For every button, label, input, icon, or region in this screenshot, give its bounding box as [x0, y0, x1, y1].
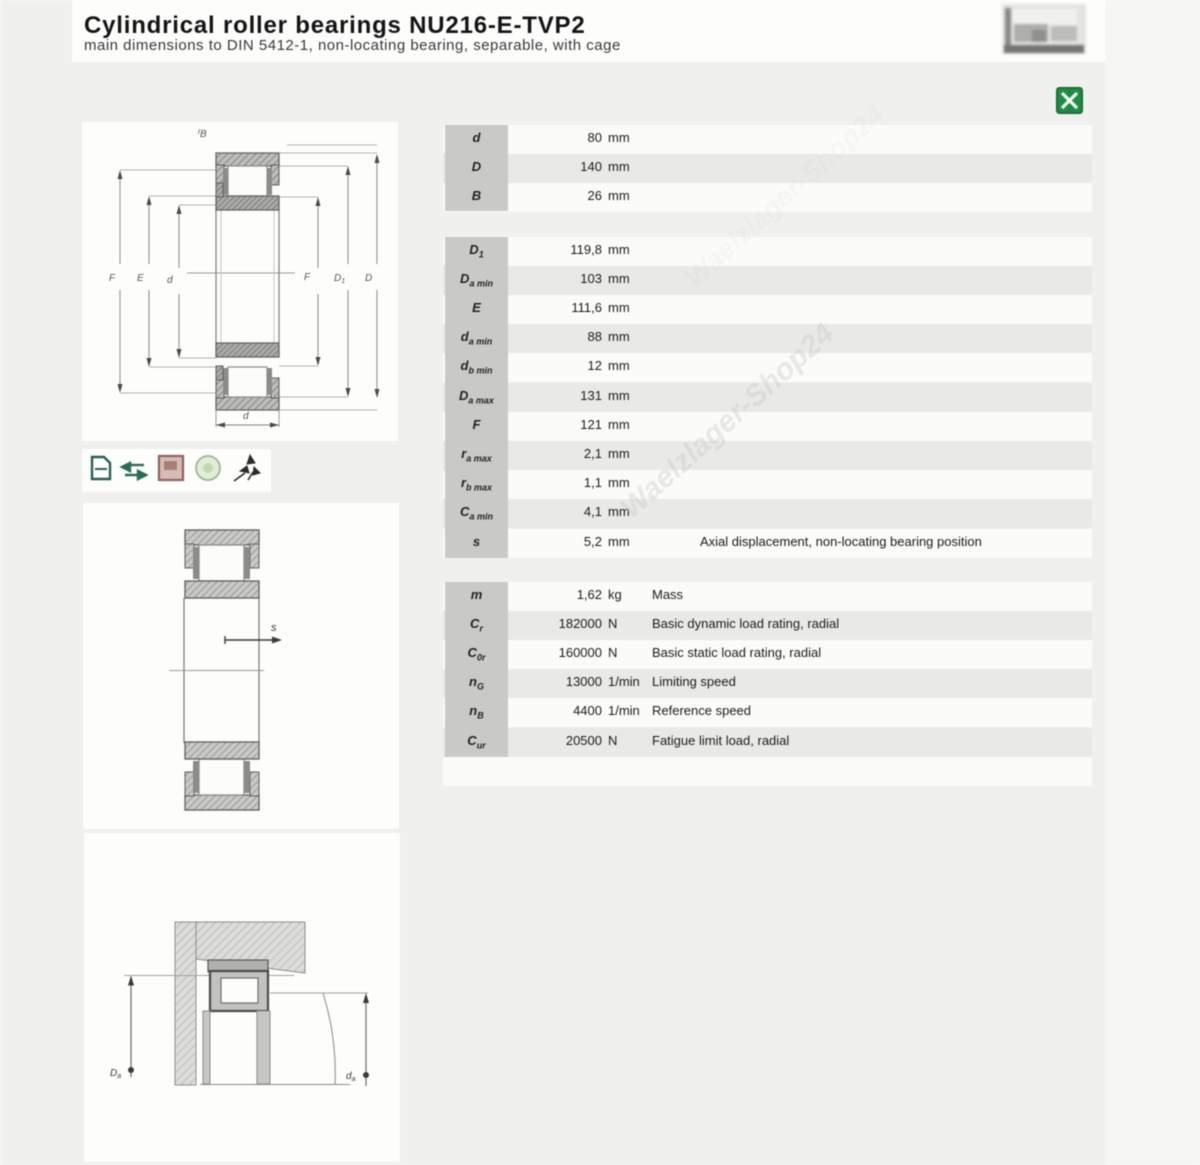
svg-text:Da: Da: [110, 1068, 121, 1080]
svg-text:r: r: [198, 127, 201, 136]
svg-text:F: F: [304, 272, 311, 283]
svg-text:D: D: [365, 273, 372, 284]
svg-text:E: E: [137, 273, 144, 284]
svg-text:D1: D1: [334, 273, 345, 285]
svg-text:d: d: [243, 411, 249, 422]
svg-text:F: F: [109, 273, 116, 284]
svg-text:d: d: [167, 275, 173, 286]
svg-text:da: da: [346, 1071, 356, 1083]
svg-text:B: B: [200, 129, 207, 140]
svg-text:s: s: [271, 622, 277, 634]
